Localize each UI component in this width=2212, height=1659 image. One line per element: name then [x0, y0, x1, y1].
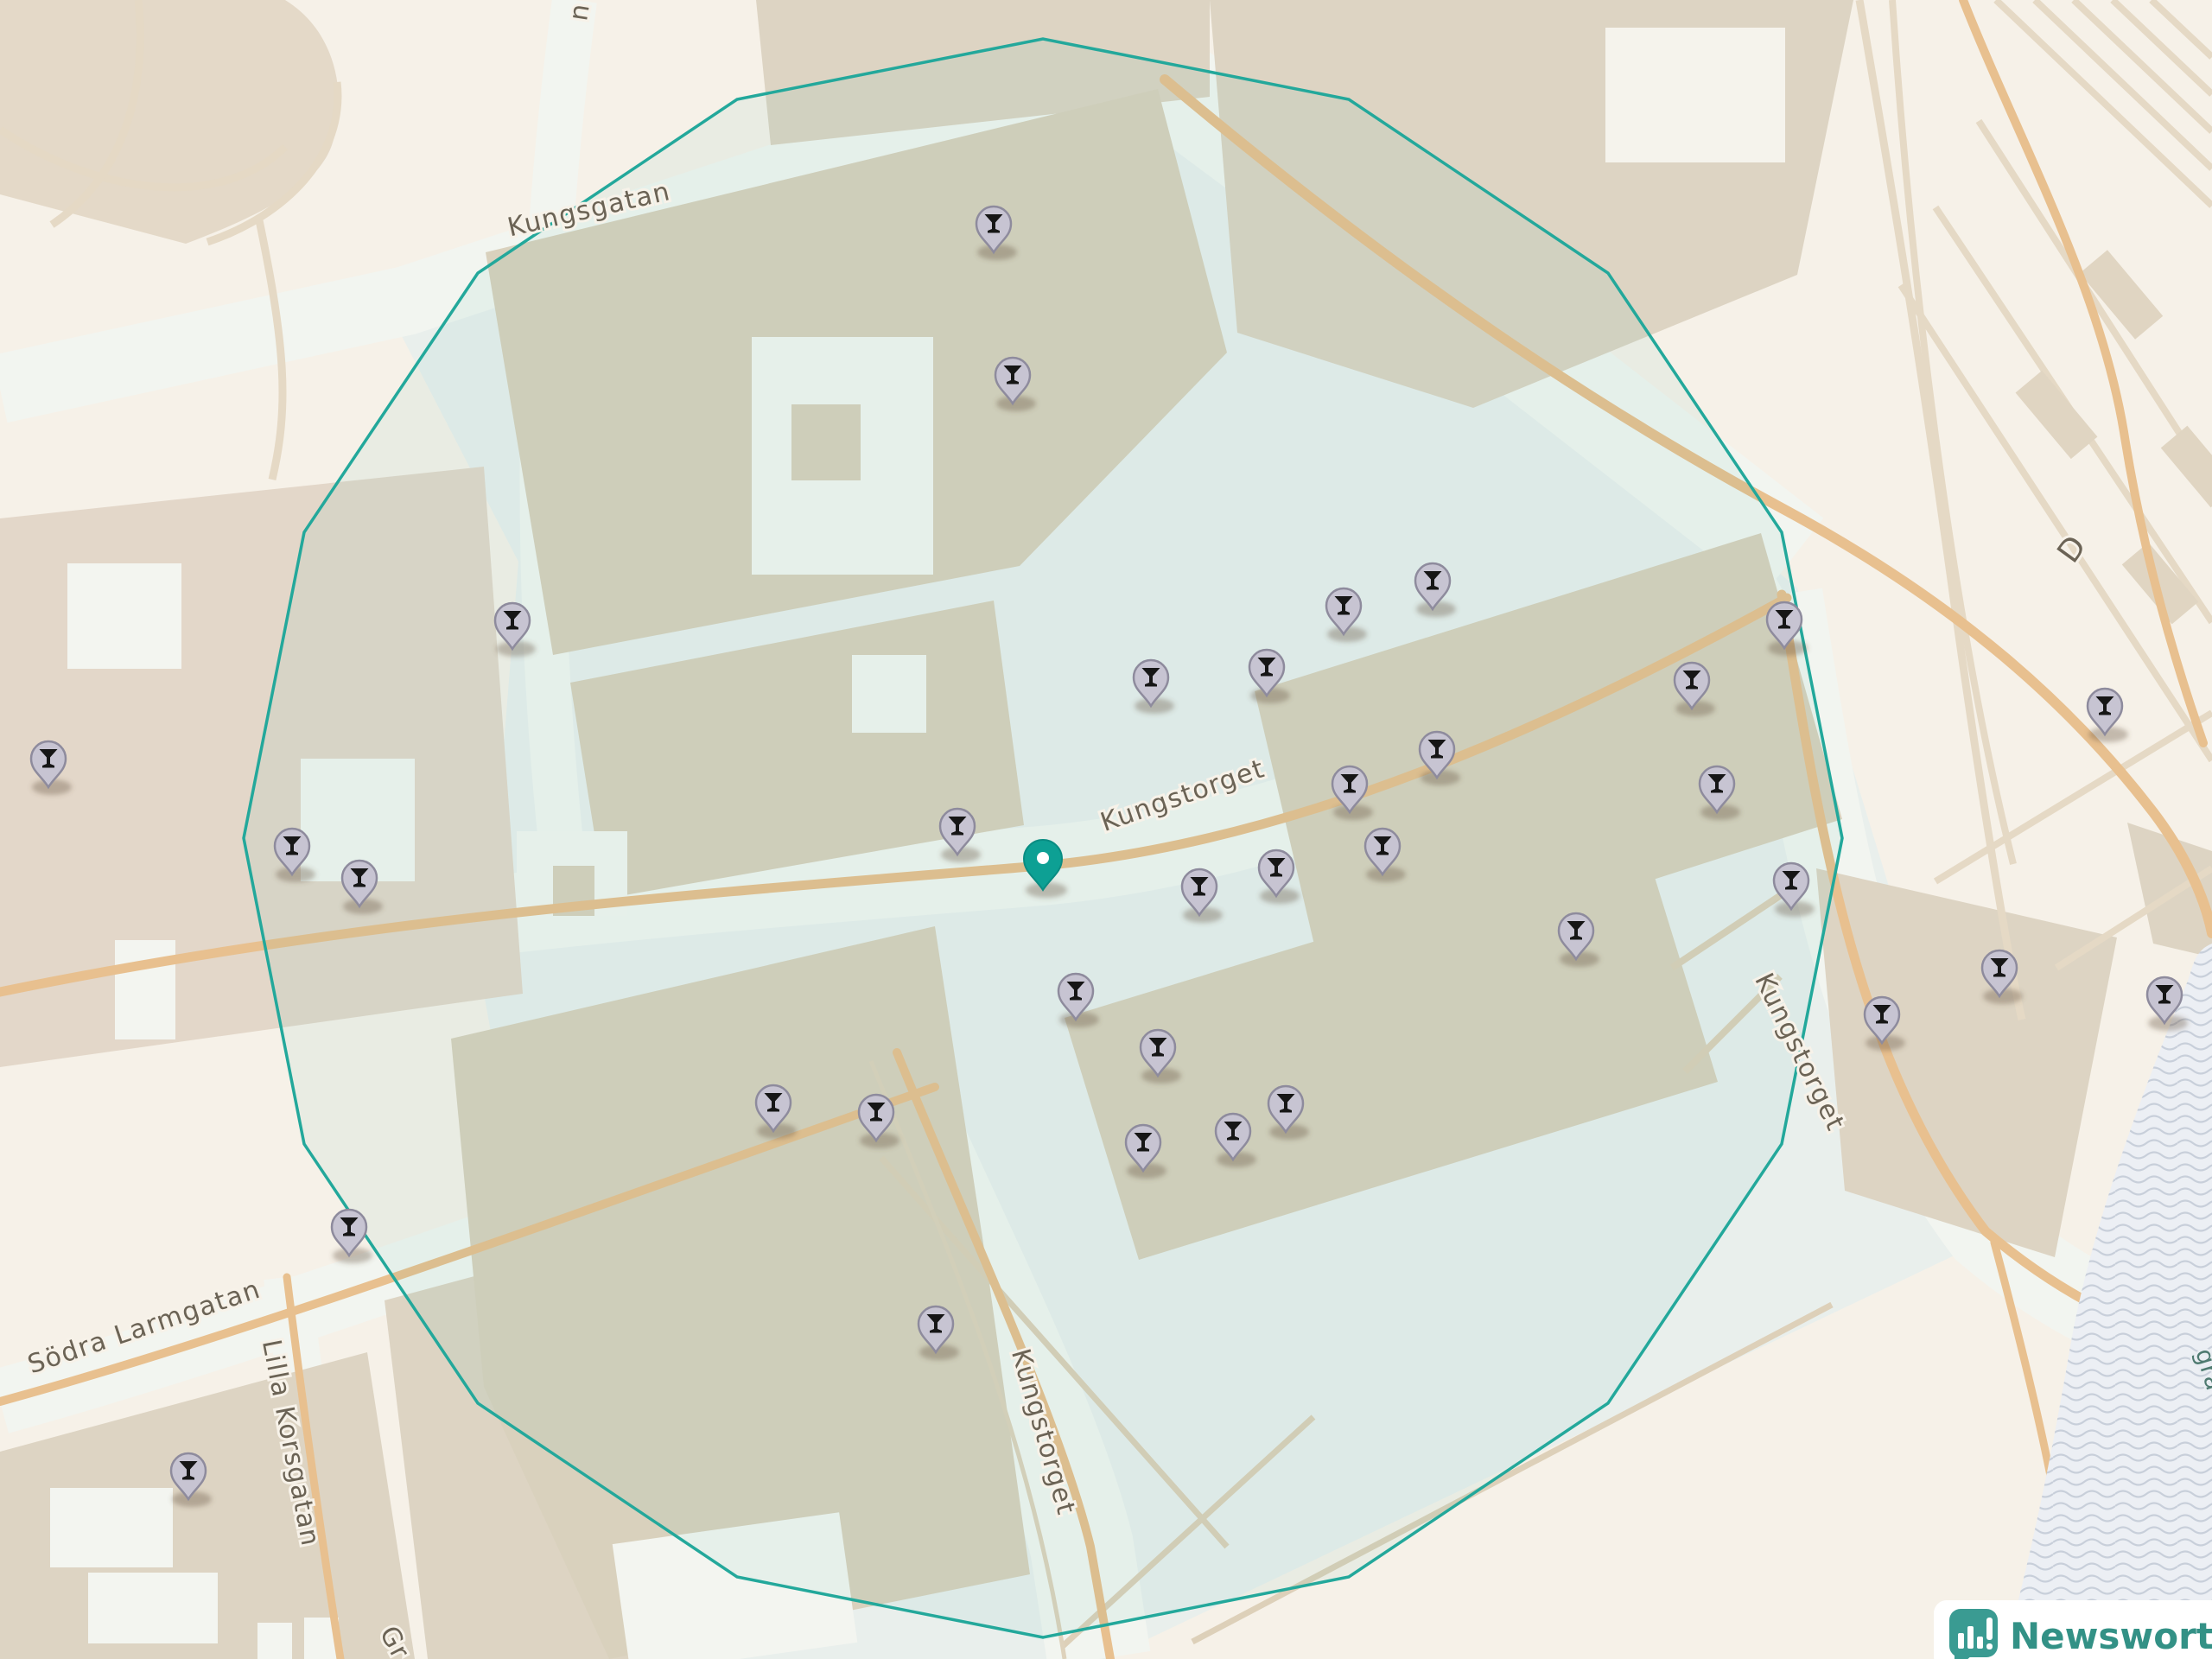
- map-canvas[interactable]: Kungsgatan Kungstorget Kungstorget Kungs…: [0, 0, 2212, 1659]
- attribution-logo-text: Newsworthy: [2010, 1615, 2212, 1657]
- map-svg[interactable]: Kungsgatan Kungstorget Kungstorget Kungs…: [0, 0, 2212, 1659]
- attribution-logo: Newsworthy: [1934, 1600, 2212, 1659]
- pin-hole: [1037, 852, 1049, 864]
- newsworthy-chart-bubble-icon: [1949, 1609, 1998, 1659]
